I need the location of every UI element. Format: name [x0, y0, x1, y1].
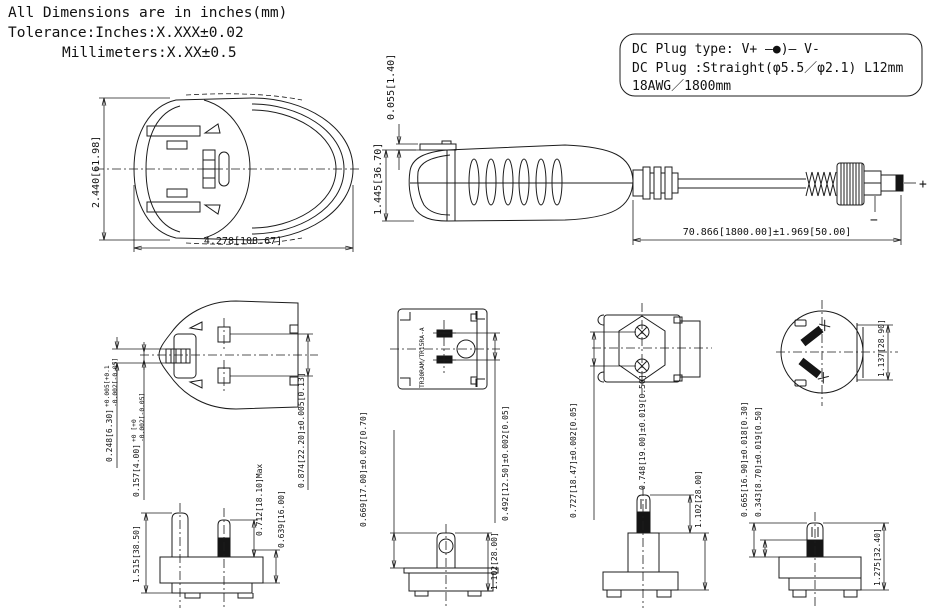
dim-eu-pin-pitch: 0.727[18.47]±0.002[0.05]: [569, 402, 578, 518]
au-plug-face-view: 1.137[28.90]: [776, 300, 898, 406]
dim-top-width: 4.278[108.67]: [204, 236, 282, 247]
us-plug-side-view: 0.669[17.00]±0.027[0.70] 1.102[28.00]: [359, 411, 499, 606]
dim-body-height: 1.445[36.70]: [373, 143, 384, 215]
dim-eu-pin-length: 0.748[19.00]±0.019[0.50]: [638, 374, 647, 490]
dim-uk-total-height: 1.515[38.50]: [132, 525, 141, 583]
dim-uk-pin-length-max: 0.712[18.10]Max: [255, 464, 264, 536]
eu-module-neck: [628, 533, 659, 572]
note-tolerance-mm: Millimeters:X.XX±0.5: [62, 45, 237, 61]
dim-uk-pin-thickness-tol-minus: -0.002[-0.05]: [139, 393, 146, 442]
dim-uk-pin-length: 0.639[16.00]: [277, 490, 286, 548]
au-module-plate: [779, 557, 861, 578]
dim-au-sleeve-length: 0.343[8.70]±0.019[0.50]: [754, 406, 763, 517]
adapter-top-view: 2.440[61.98] 4.278[108.67]: [91, 94, 362, 252]
dc-plug-spec-box: DC Plug type: V+ —●)— V- DC Plug :Straig…: [620, 34, 922, 96]
au-blade-top: [800, 320, 830, 346]
dc-cable-spec: 18AWG／1800mm: [632, 79, 731, 94]
dc-plug-tip-ring: [896, 175, 903, 191]
dim-au-body-width: 1.275[32.40]: [873, 528, 882, 586]
polarity-plus: +: [919, 177, 927, 192]
us-plug-face-view: TR30RAM/TR15RA-A 0.492[12.50]±0.002[0.05…: [390, 309, 510, 523]
dim-us-pin-length: 0.669[17.00]±0.027[0.70]: [359, 411, 368, 527]
note-tolerance-inches: Tolerance:Inches:X.XXX±0.02: [8, 25, 244, 41]
strain-relief-base: [633, 170, 643, 196]
dc-plug-size: DC Plug :Straight(φ5.5／φ2.1) L12mm: [632, 61, 903, 76]
dim-us-body-width: 1.102[28.00]: [490, 532, 499, 590]
uk-plug-base: [160, 557, 263, 583]
drawing-sheet: All Dimensions are in inches(mm) Toleran…: [0, 0, 932, 612]
us-module-plate: [404, 568, 498, 573]
dc-plug-type: DC Plug type: V+ —●)— V-: [632, 42, 820, 57]
au-plug-side-view: 0.665[16.90]±0.018[0.30] 0.343[8.70]±0.0…: [740, 401, 889, 608]
us-blade-slot-bottom: [437, 356, 452, 363]
dim-uk-pin-width-tol-minus: -0.002[-0.05]: [112, 358, 119, 407]
eu-pin-sleeve: [637, 512, 650, 533]
dc-plug-barrel: [881, 175, 896, 191]
dim-uk-pin-width-tol-plus: +0.005[+0.1: [104, 365, 111, 407]
dim-uk-pin-thickness-value: 0.157[4.00]: [132, 444, 141, 497]
dim-cable-length: 70.866[1800.00]±1.969[50.00]: [683, 227, 852, 238]
general-notes: All Dimensions are in inches(mm) Toleran…: [8, 5, 287, 61]
dim-au-pin-length: 0.665[16.90]±0.018[0.30]: [740, 401, 749, 517]
dim-us-pin-pitch: 0.492[12.50]±0.002[0.05]: [501, 405, 510, 521]
dim-uk-pin-pitch: 0.874[22.20]±0.005[0.13]: [297, 372, 306, 488]
eu-module-base: [603, 572, 678, 590]
dim-top-height: 2.440[61.98]: [91, 136, 102, 208]
dim-eu-body-width: 1.102[28.00]: [694, 470, 703, 528]
mount-clip: [420, 144, 456, 150]
us-blade-slot-top: [437, 330, 452, 337]
dim-clip-height: 0.055[1.40]: [386, 54, 397, 120]
eu-pin: [637, 495, 650, 512]
polarity-minus: −: [870, 213, 878, 228]
uk-plug-face-view: 0.248[6.30] +0.005[+0.1 -0.002[-0.05] 0.…: [104, 301, 318, 500]
note-units: All Dimensions are in inches(mm): [8, 5, 287, 21]
uk-plug-side-view: 1.515[38.50] 0.712[18.10]Max 0.639[16.00…: [132, 464, 286, 608]
dim-uk-pin-width-value: 0.248[6.30]: [105, 409, 114, 462]
eu-plug-side-view: 0.748[19.00]±0.019[0.50] 1.102[28.00]: [603, 374, 709, 608]
technical-drawing: All Dimensions are in inches(mm) Toleran…: [0, 0, 932, 612]
model-label: TR30RAM/TR15RA-A: [419, 327, 426, 388]
vent: [469, 159, 479, 205]
dim-uk-pin-thickness-tol-plus: +0 [+0: [131, 419, 138, 442]
dim-au-diameter: 1.137[28.90]: [877, 319, 886, 377]
flex-sleeve: [806, 172, 836, 196]
